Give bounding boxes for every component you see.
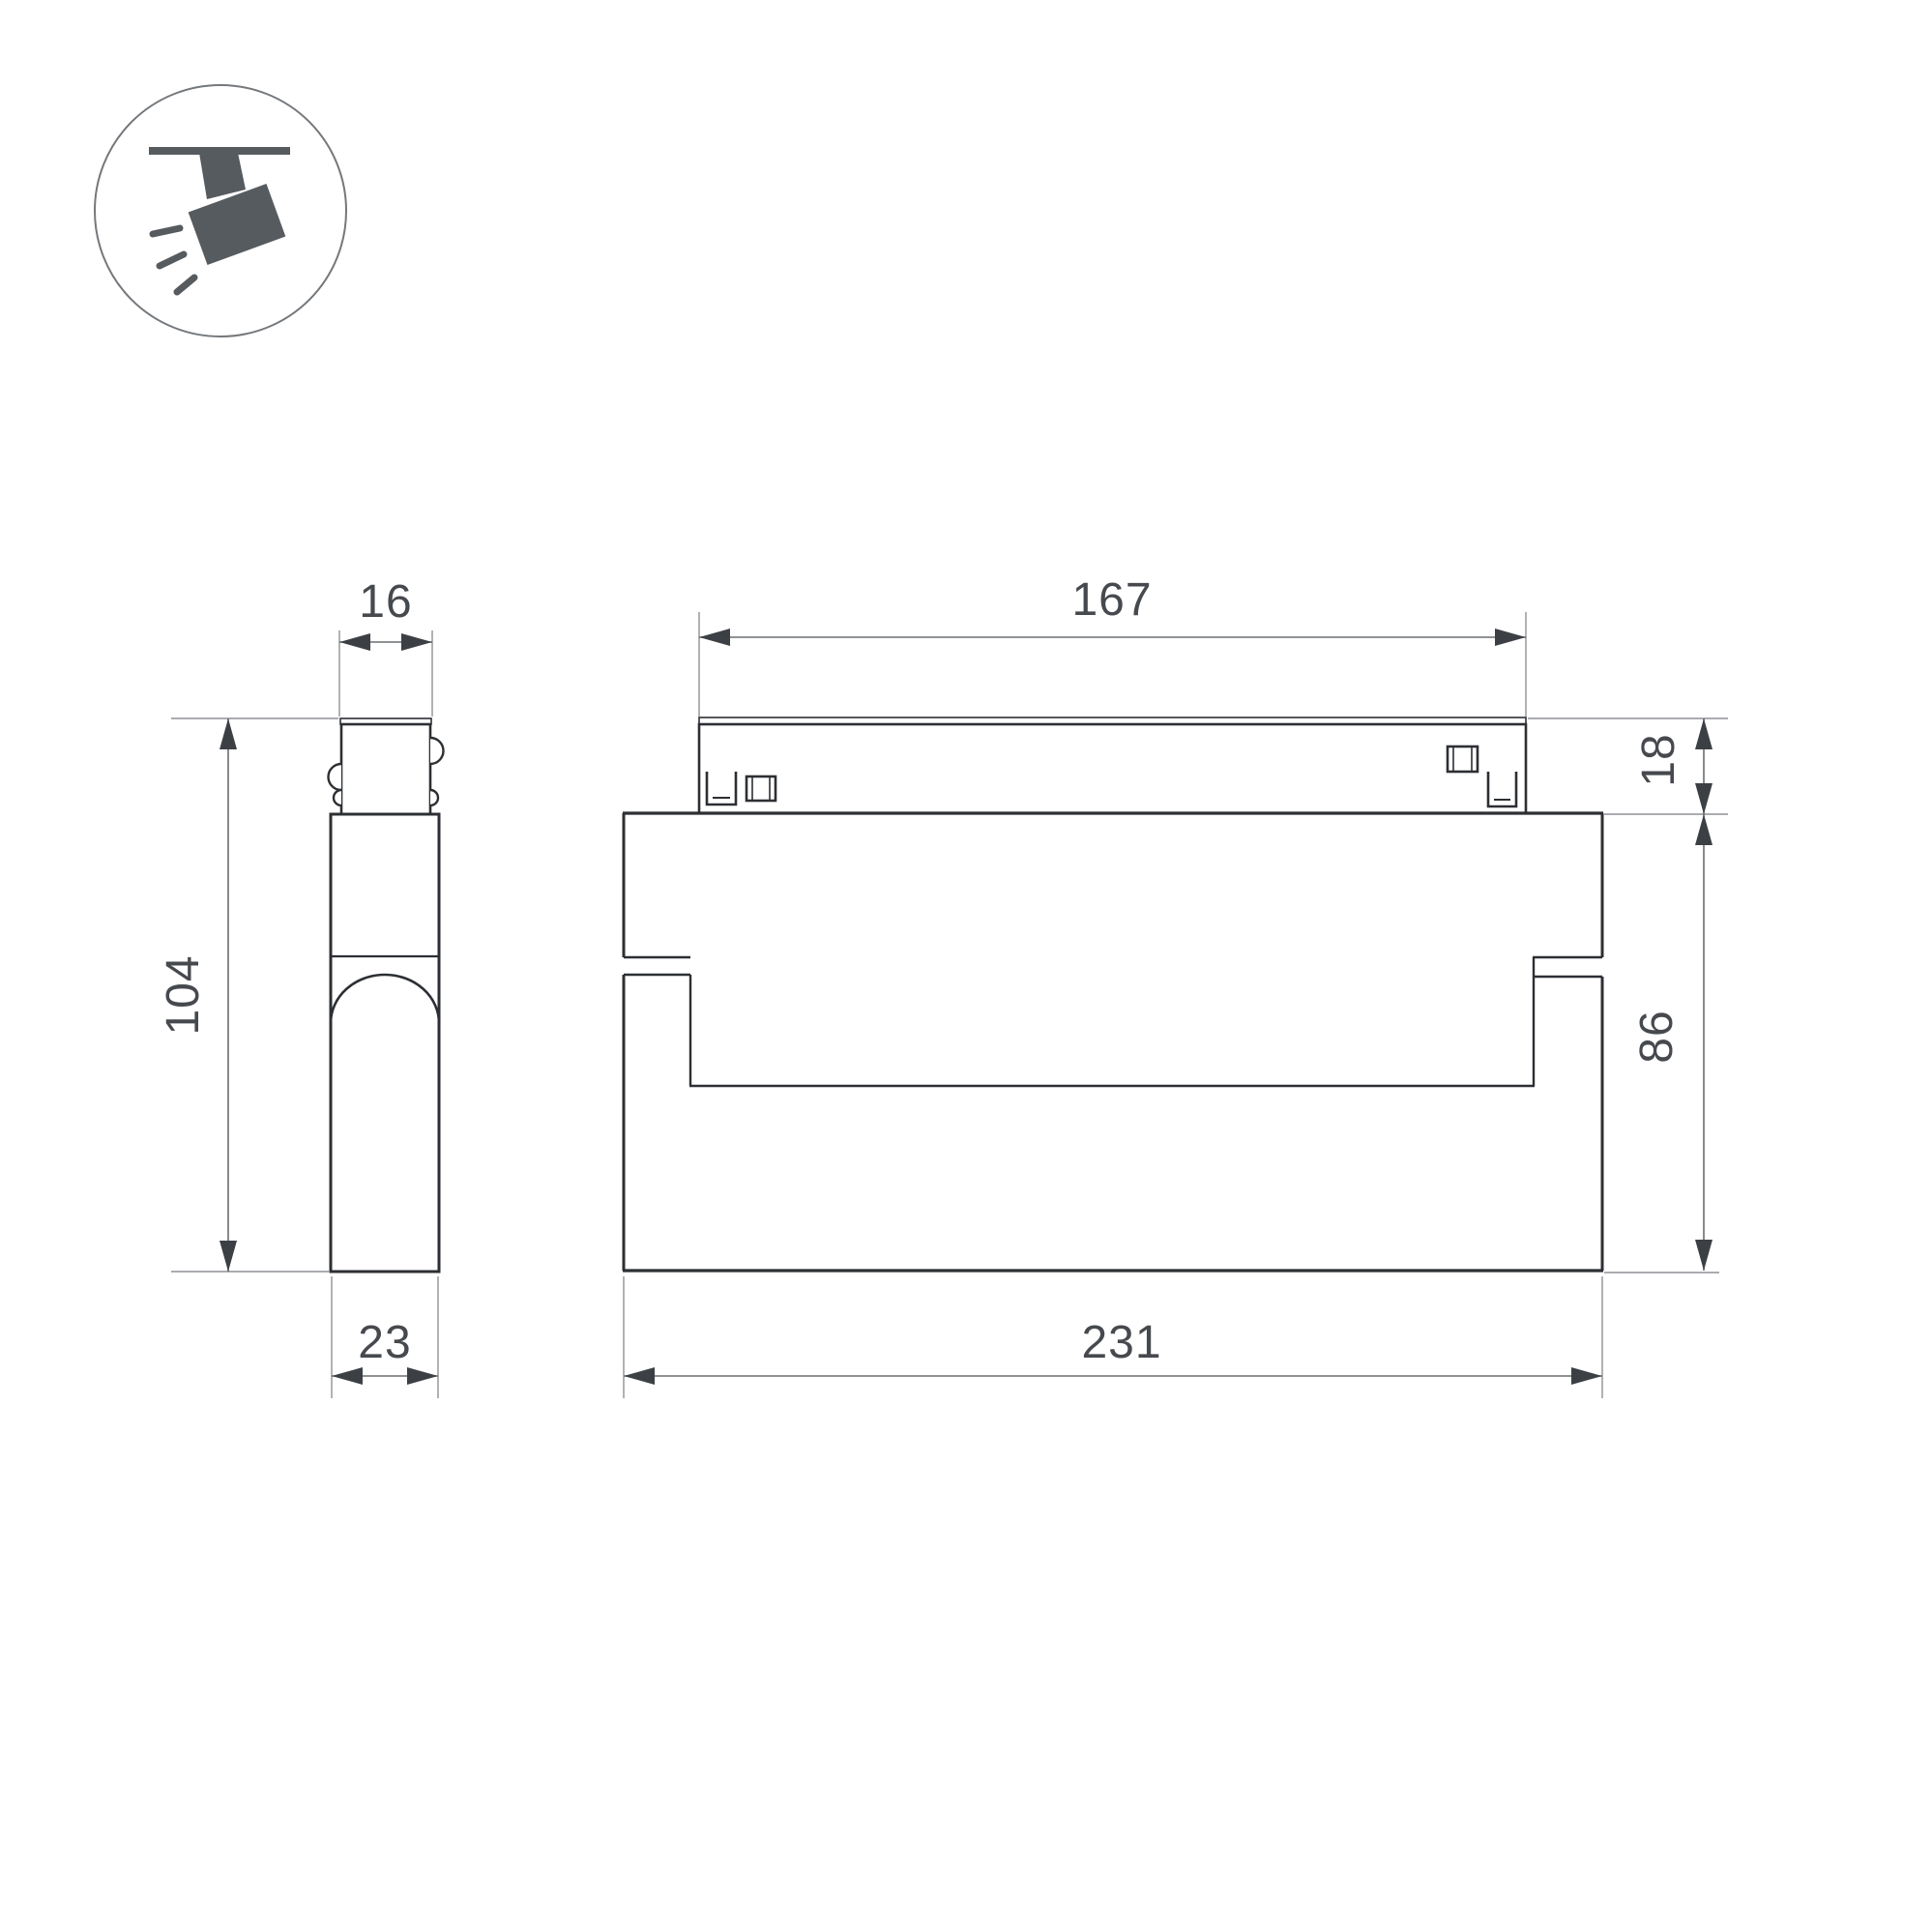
side-clip-right-small [430, 790, 438, 805]
technical-drawing: 16 104 23 167 18 86 231 [0, 0, 1932, 1932]
dim-label-18: 18 [1633, 733, 1684, 786]
drawing-canvas: 16 104 23 167 18 86 231 [0, 0, 1932, 1932]
dim-label-167: 167 [1071, 574, 1152, 626]
dimension-front-body-height: 86 [1604, 814, 1719, 1273]
side-clip-right-large [430, 738, 444, 764]
front-track-strip [699, 724, 1526, 814]
dim-label-86: 86 [1631, 1010, 1683, 1063]
side-view [329, 718, 444, 1272]
side-clip-left-small [334, 790, 341, 805]
front-body-fill [624, 813, 1602, 1271]
dimension-side-height: 104 [158, 718, 338, 1272]
dimension-front-track-width: 167 [699, 574, 1526, 717]
dim-label-16: 16 [359, 576, 412, 628]
dim-label-104: 104 [158, 954, 209, 1035]
track-spotlight-icon [95, 85, 346, 337]
dimension-front-body-width: 231 [624, 1276, 1602, 1398]
side-clip-left-large [329, 764, 342, 790]
front-view [623, 717, 1603, 1271]
side-body [331, 814, 439, 1272]
side-connector [341, 724, 430, 814]
dimension-front-track-height: 18 [1528, 718, 1728, 814]
dimension-side-top-width: 16 [339, 576, 432, 717]
dimension-side-bottom-width: 23 [332, 1276, 438, 1398]
dim-label-23: 23 [358, 1317, 411, 1368]
dim-label-231: 231 [1081, 1317, 1161, 1368]
